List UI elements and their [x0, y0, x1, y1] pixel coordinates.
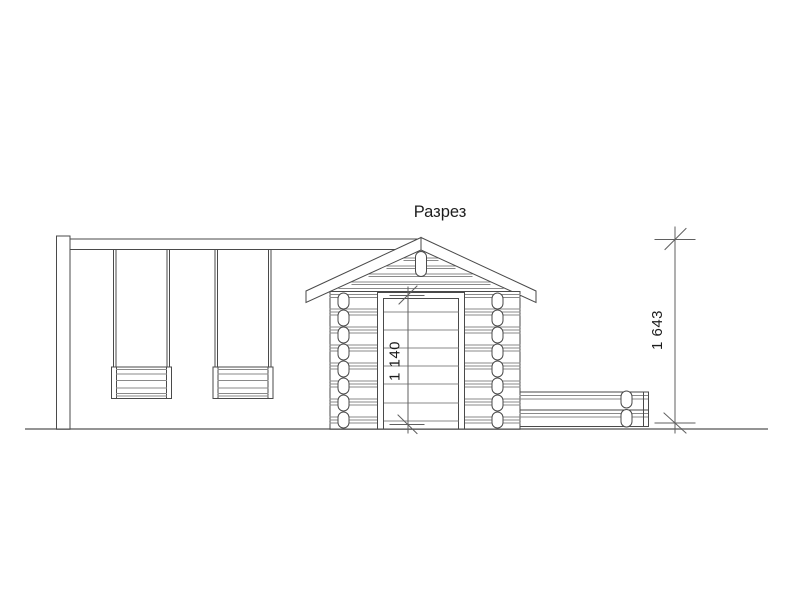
section-drawing-page: Разрез: [0, 0, 800, 600]
swing-rope: [114, 250, 117, 368]
platform: [520, 391, 649, 427]
section-drawing: Разрез: [0, 0, 800, 600]
dimension-text-door-height: 1 140: [387, 341, 404, 381]
frame-post: [57, 236, 71, 429]
swing-rope: [167, 250, 170, 368]
swing-rope: [269, 250, 272, 368]
gable-log-end: [416, 252, 427, 277]
platform-log-ends: [621, 391, 632, 427]
swing-right: [213, 250, 273, 399]
swing-left: [112, 250, 172, 399]
dimension-text-frame-height: 1 643: [649, 310, 666, 350]
swing-rope: [215, 250, 218, 368]
drawing-title: Разрез: [414, 203, 467, 221]
frame-height-dimension: 1 643: [649, 227, 695, 433]
